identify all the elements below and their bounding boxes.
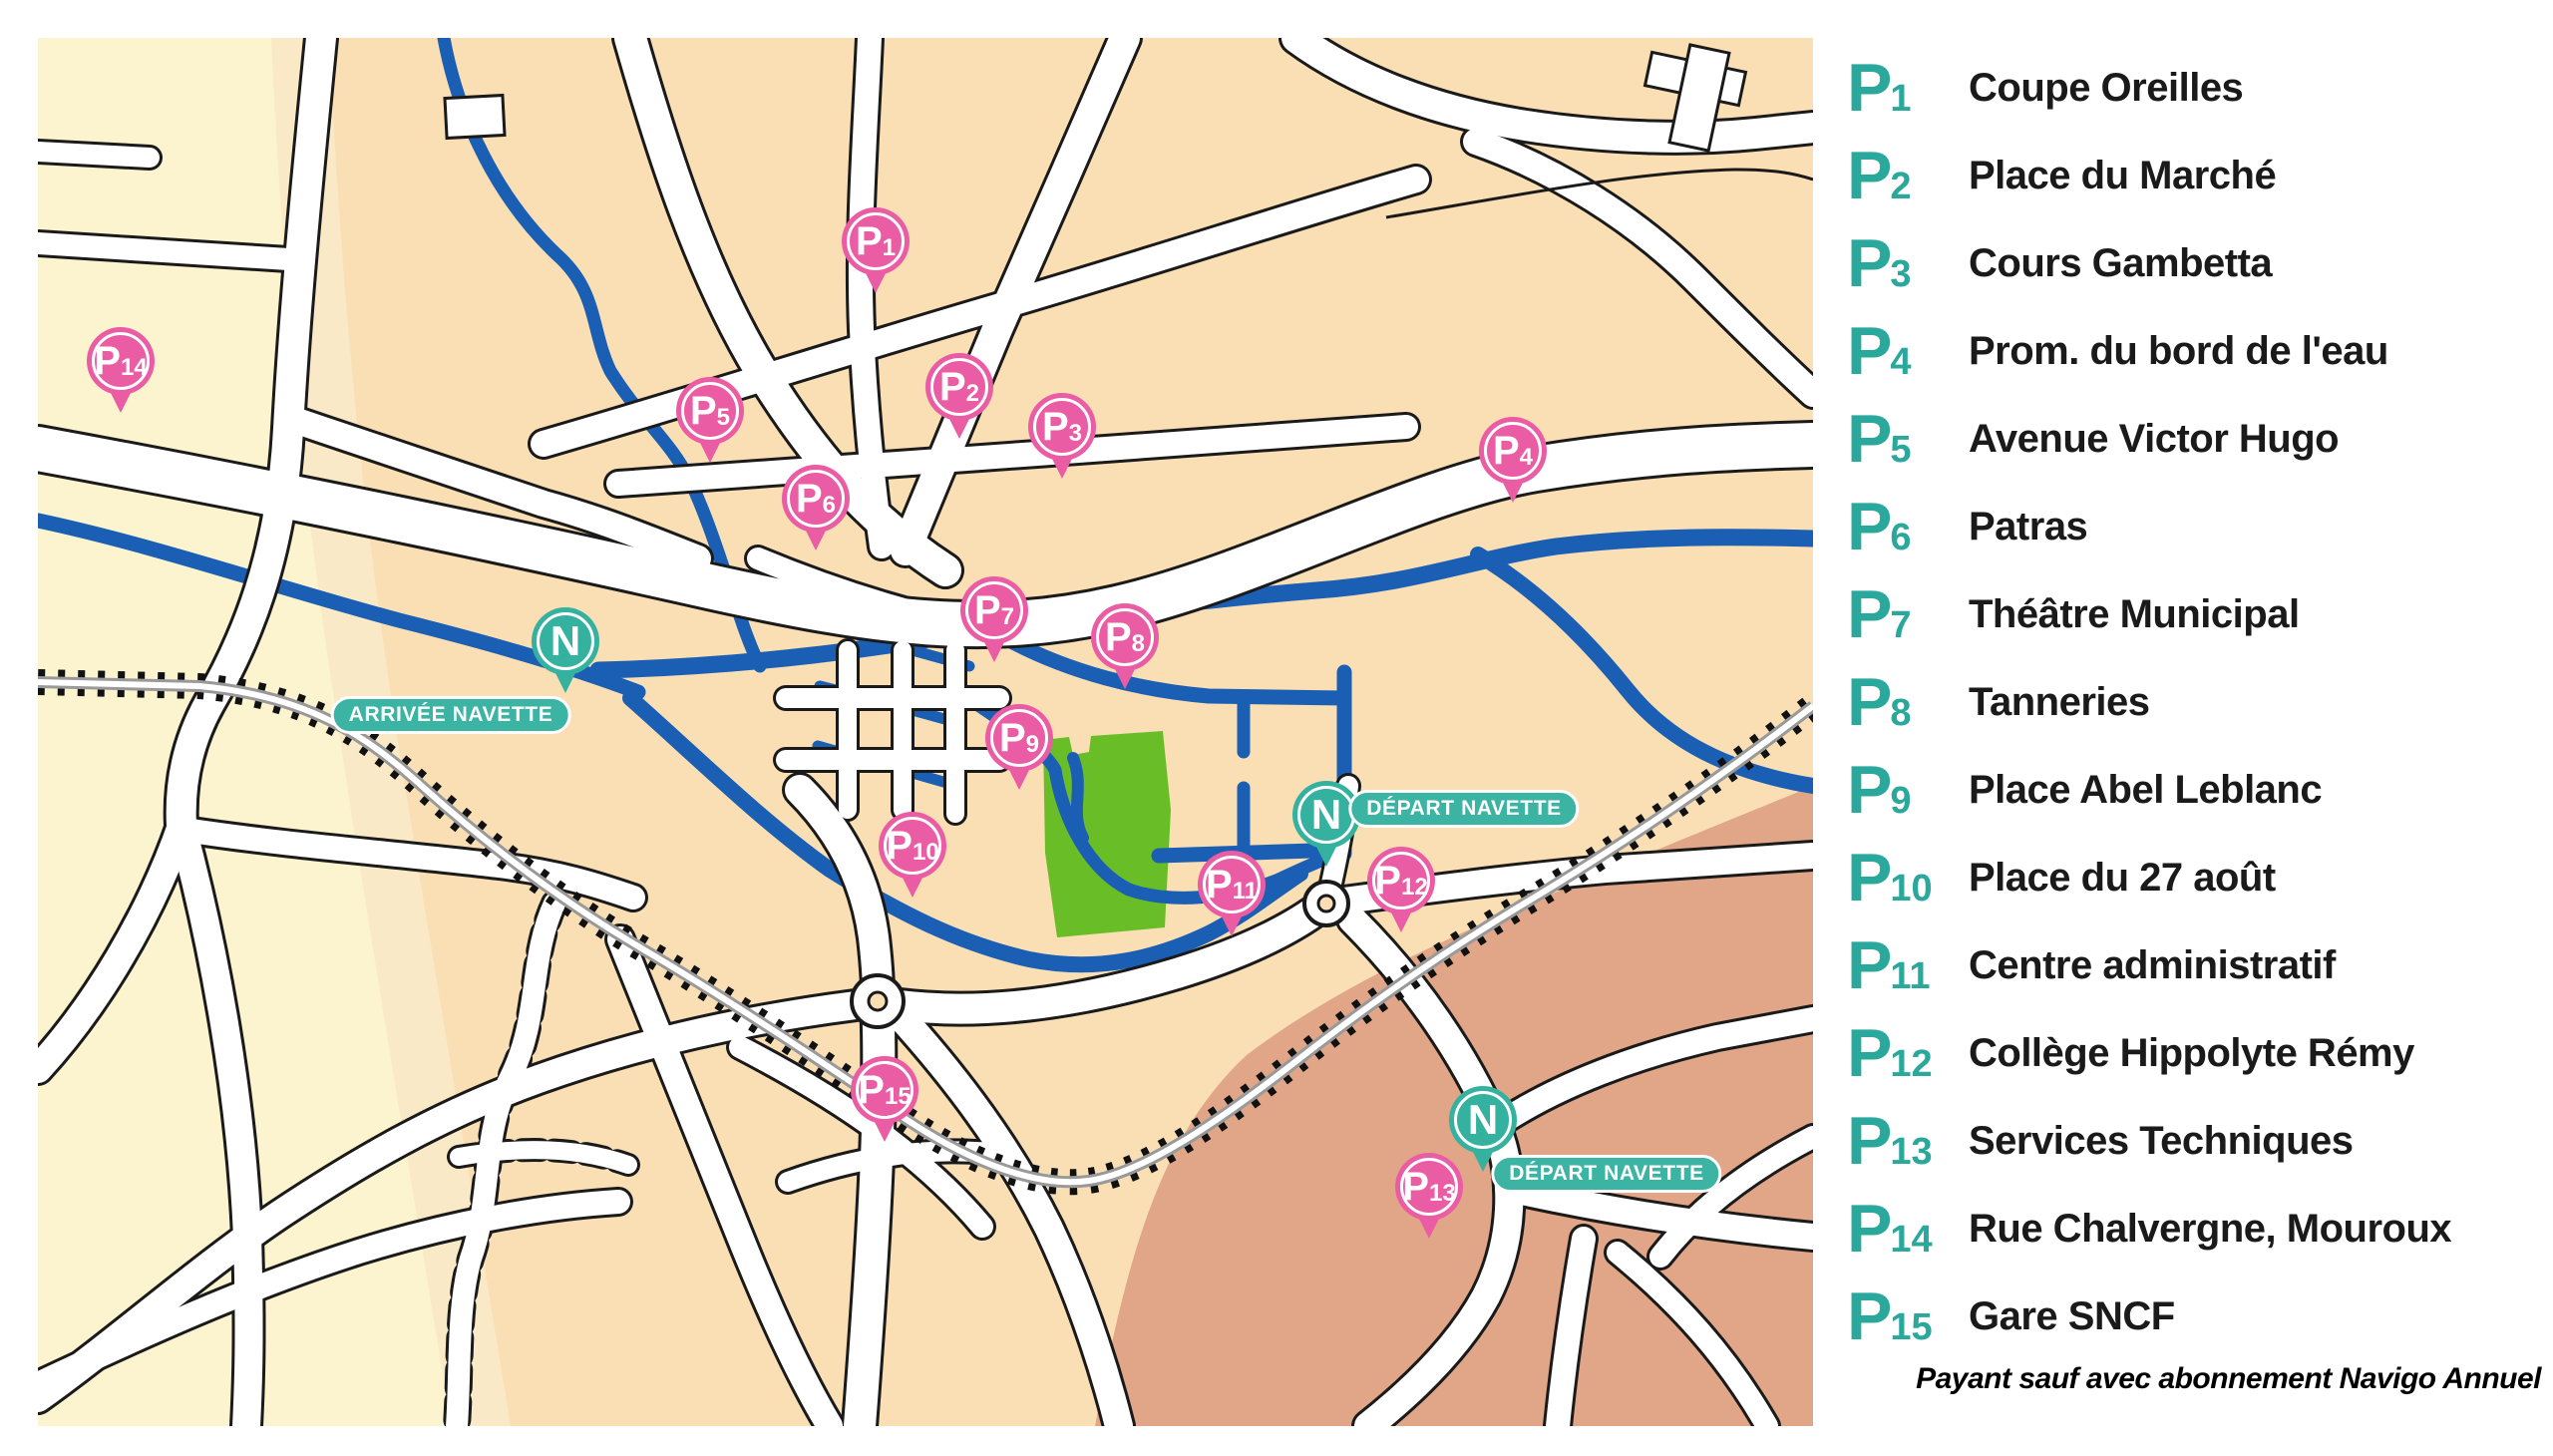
parking-map-page: P1P2P3P4P5P6P7P8P9P10P11P12P13P14P15NNNA… (0, 0, 2553, 1456)
badge-number: 4 (1890, 343, 1911, 381)
parking-pin-P8: P8 (1091, 603, 1159, 671)
legend-item-P13: P13Services Techniques (1847, 1097, 2541, 1185)
park-area (1043, 731, 1171, 937)
badge-number: 13 (1890, 1133, 1932, 1171)
legend-parking-badge: P2 (1847, 142, 1969, 209)
pin-number: 8 (1132, 632, 1145, 656)
pin-letter: P (1402, 1167, 1429, 1207)
legend-item-P10: P10Place du 27 août (1847, 834, 2541, 921)
badge-letter: P (1847, 931, 1890, 999)
legend-item-label: Coupe Oreilles (1969, 66, 2243, 111)
legend-parking-badge: P3 (1847, 229, 1969, 297)
badge-letter: P (1847, 142, 1890, 209)
legend-parking-badge: P10 (1847, 844, 1969, 911)
badge-letter: P (1847, 844, 1890, 911)
city-map (38, 38, 1813, 1426)
shuttle-stop-pin-N-depart-sud: N (1449, 1086, 1517, 1154)
legend-item-P7: P7Théâtre Municipal (1847, 570, 2541, 658)
legend-item-label: Tanneries (1969, 680, 2150, 725)
pin-letter: P (690, 391, 717, 431)
legend-item-P11: P11Centre administratif (1847, 921, 2541, 1009)
legend-note: Payant sauf avec abonnement Navigo Annue… (1847, 1362, 2541, 1396)
legend-parking-badge: P4 (1847, 317, 1969, 385)
legend-parking-badge: P7 (1847, 580, 1969, 648)
pin-number: 5 (717, 406, 730, 430)
badge-letter: P (1847, 405, 1890, 473)
legend-item-P15: P15Gare SNCF (1847, 1273, 2541, 1360)
badge-letter: P (1847, 54, 1890, 122)
pin-letter: P (1042, 407, 1069, 447)
pin-letter: N (1468, 1099, 1498, 1141)
badge-number: 5 (1890, 431, 1911, 469)
legend-item-label: Centre administratif (1969, 943, 2336, 988)
badge-number: 15 (1890, 1308, 1932, 1346)
legend-parking-badge: P5 (1847, 405, 1969, 473)
badge-number: 8 (1890, 694, 1911, 732)
pin-letter: P (858, 1070, 885, 1110)
legend-parking-badge: P6 (1847, 493, 1969, 560)
legend-item-P12: P12Collège Hippolyte Rémy (1847, 1009, 2541, 1097)
badge-letter: P (1847, 1019, 1890, 1087)
badge-number: 3 (1890, 255, 1911, 293)
shuttle-label-arrivee-navette: ARRIVÉE NAVETTE (331, 696, 571, 734)
legend-item-label: Cours Gambetta (1969, 241, 2272, 286)
pin-letter: P (1206, 865, 1233, 905)
badge-letter: P (1847, 229, 1890, 297)
badge-number: 14 (1890, 1221, 1932, 1259)
pin-number: 6 (823, 494, 836, 518)
badge-letter: P (1847, 580, 1890, 648)
legend-item-label: Gare SNCF (1969, 1294, 2175, 1339)
parking-pin-P13: P13 (1395, 1153, 1463, 1221)
badge-letter: P (1847, 756, 1890, 824)
pin-number: 15 (885, 1085, 912, 1109)
pin-number: 2 (966, 382, 979, 406)
badge-number: 9 (1890, 782, 1911, 820)
road (38, 152, 150, 158)
legend-item-label: Services Techniques (1969, 1119, 2354, 1164)
legend-parking-badge: P8 (1847, 668, 1969, 736)
badge-letter: P (1847, 1107, 1890, 1175)
legend-item-label: Place du Marché (1969, 154, 2276, 198)
badge-letter: P (1847, 493, 1890, 560)
legend-rows: P1Coupe OreillesP2Place du MarchéP3Cours… (1847, 44, 2541, 1360)
pin-number: 10 (912, 841, 939, 865)
legend-item-label: Place Abel Leblanc (1969, 768, 2322, 813)
badge-number: 6 (1890, 519, 1911, 556)
legend-item-label: Théâtre Municipal (1969, 592, 2300, 637)
legend-item-P5: P5Avenue Victor Hugo (1847, 395, 2541, 483)
park-stream (1073, 758, 1083, 838)
legend-item-P3: P3Cours Gambetta (1847, 219, 2541, 307)
legend-item-label: Avenue Victor Hugo (1969, 417, 2339, 462)
legend-item-P2: P2Place du Marché (1847, 132, 2541, 219)
legend-item-P9: P9Place Abel Leblanc (1847, 746, 2541, 834)
parking-pin-P3: P3 (1028, 393, 1096, 461)
parking-pin-P5: P5 (676, 377, 744, 445)
parking-pin-P9: P9 (985, 704, 1053, 772)
pin-number: 1 (883, 236, 896, 260)
badge-number: 2 (1890, 168, 1911, 205)
legend-parking-badge: P15 (1847, 1282, 1969, 1350)
parking-pin-P1: P1 (842, 207, 910, 275)
pin-letter: P (999, 718, 1026, 758)
pin-number: 9 (1026, 733, 1039, 757)
legend-parking-badge: P11 (1847, 931, 1969, 999)
badge-number: 10 (1890, 870, 1932, 908)
pin-letter: P (886, 826, 912, 866)
badge-number: 12 (1890, 1045, 1932, 1083)
badge-letter: P (1847, 1282, 1890, 1350)
parking-pin-P15: P15 (851, 1056, 918, 1124)
legend-parking-badge: P12 (1847, 1019, 1969, 1087)
legend: P1Coupe OreillesP2Place du MarchéP3Cours… (1847, 44, 2541, 1396)
map-canvas (38, 38, 1813, 1426)
pin-number: 12 (1401, 876, 1428, 900)
pin-letter: P (1105, 617, 1132, 657)
pin-number: 4 (1520, 446, 1533, 470)
parking-pin-P6: P6 (782, 465, 850, 533)
legend-item-label: Patras (1969, 505, 2087, 549)
pin-letter: P (94, 341, 121, 381)
legend-item-P4: P4Prom. du bord de l'eau (1847, 307, 2541, 395)
badge-number: 7 (1890, 606, 1911, 644)
parking-pin-P2: P2 (925, 353, 993, 421)
parking-pin-P14: P14 (87, 327, 155, 395)
badge-letter: P (1847, 317, 1890, 385)
legend-item-P8: P8Tanneries (1847, 658, 2541, 746)
legend-item-P1: P1Coupe Oreilles (1847, 44, 2541, 132)
badge-letter: P (1847, 1195, 1890, 1263)
parking-pin-P11: P11 (1198, 851, 1266, 918)
pin-letter: N (550, 620, 580, 662)
badge-number: 11 (1890, 957, 1930, 995)
legend-item-label: Rue Chalvergne, Mouroux (1969, 1207, 2451, 1252)
pin-letter: P (1374, 861, 1401, 901)
legend-item-label: Place du 27 août (1969, 856, 2276, 901)
pin-letter: N (1311, 794, 1341, 836)
legend-parking-badge: P9 (1847, 756, 1969, 824)
pin-letter: P (856, 221, 883, 261)
legend-item-P14: P14Rue Chalvergne, Mouroux (1847, 1185, 2541, 1273)
parking-pin-P4: P4 (1479, 417, 1547, 485)
pin-number: 14 (121, 356, 148, 380)
pin-number: 11 (1233, 880, 1258, 904)
legend-parking-badge: P14 (1847, 1195, 1969, 1263)
legend-item-label: Collège Hippolyte Rémy (1969, 1031, 2414, 1076)
legend-item-label: Prom. du bord de l'eau (1969, 329, 2388, 374)
pin-letter: P (796, 479, 823, 519)
badge-letter: P (1847, 668, 1890, 736)
legend-parking-badge: P1 (1847, 54, 1969, 122)
pin-letter: P (939, 367, 966, 407)
parking-pin-P7: P7 (960, 576, 1028, 644)
pin-number: 3 (1069, 422, 1082, 446)
shuttle-stop-pin-N-arrivee: N (532, 607, 599, 675)
legend-parking-badge: P13 (1847, 1107, 1969, 1175)
parking-pin-P12: P12 (1367, 847, 1435, 914)
legend-item-P6: P6Patras (1847, 483, 2541, 570)
shuttle-label-depart-navette-1: DÉPART NAVETTE (1348, 790, 1579, 828)
pin-number: 7 (1001, 605, 1014, 629)
pin-letter: P (1493, 431, 1520, 471)
pin-letter: P (974, 590, 1001, 630)
pin-number: 13 (1429, 1182, 1456, 1206)
parking-pin-P10: P10 (879, 812, 946, 880)
badge-number: 1 (1890, 80, 1911, 118)
shuttle-label-depart-navette-2: DÉPART NAVETTE (1491, 1155, 1721, 1193)
